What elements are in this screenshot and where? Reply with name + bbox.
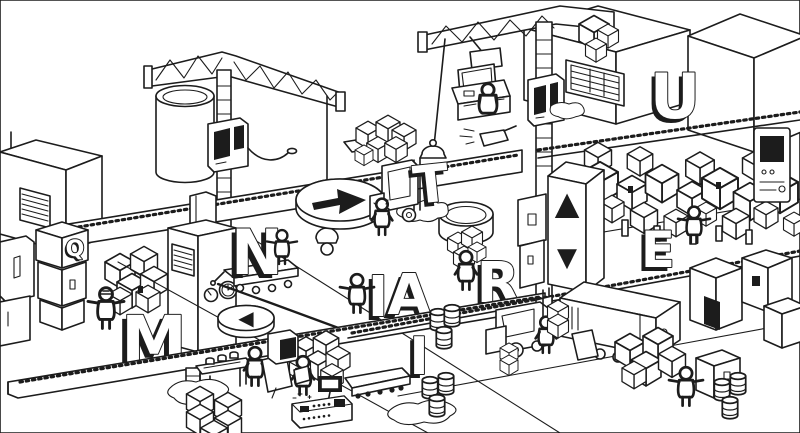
intercom-panel[interactable] (754, 128, 790, 202)
pressure-sprayer[interactable] (460, 126, 516, 146)
crate-cluster-on-pallet[interactable] (344, 115, 416, 165)
crate-stack-far-left[interactable] (0, 236, 34, 346)
elevator-up-icon[interactable]: ▲ (555, 184, 580, 222)
power-hose (248, 148, 288, 160)
arrow-left-icon: ◀ (238, 306, 254, 330)
hose-plug (288, 148, 297, 153)
vent-grill-icon (172, 244, 194, 276)
flatbed-cart[interactable] (345, 368, 410, 399)
svg-text:U: U (650, 60, 700, 133)
crate-stack-with-q-label[interactable]: Q Q (36, 222, 88, 330)
game-scene-construction-site: Q Q (0, 0, 800, 433)
control-box[interactable] (518, 194, 546, 288)
control-console-keyboard[interactable] (292, 396, 352, 428)
silo-tank[interactable] (156, 86, 214, 183)
puddle (388, 400, 456, 425)
svg-text:Q: Q (66, 237, 85, 262)
letter-u[interactable]: U U (646, 60, 700, 137)
crane-cab[interactable] (528, 74, 564, 126)
crane-cab[interactable] (208, 118, 248, 172)
letter-q[interactable]: Q Q (64, 237, 85, 264)
svg-text:E: E (641, 221, 675, 279)
carried-board (294, 366, 310, 384)
letter-t-on-forklift[interactable]: T T (406, 153, 452, 221)
elevator-tower[interactable]: ▲ ▼ (548, 162, 604, 292)
vent-grill-icon (20, 188, 50, 228)
crane-hook-ball[interactable] (316, 228, 338, 255)
hoist-cable (434, 39, 445, 146)
turntable-arrow-left[interactable]: ◀ (218, 305, 274, 337)
hanging-control-console[interactable] (452, 48, 510, 120)
crane-operator-person[interactable] (479, 84, 497, 114)
svg-text:T: T (410, 153, 452, 216)
gauge-dial-icon[interactable] (205, 289, 218, 302)
hoist-dome-cap[interactable] (420, 140, 446, 158)
large-crates-with-openings[interactable] (690, 250, 800, 348)
elevator-down-icon[interactable]: ▼ (557, 243, 577, 273)
sparks (293, 392, 311, 399)
floor-monitor[interactable] (268, 330, 298, 364)
